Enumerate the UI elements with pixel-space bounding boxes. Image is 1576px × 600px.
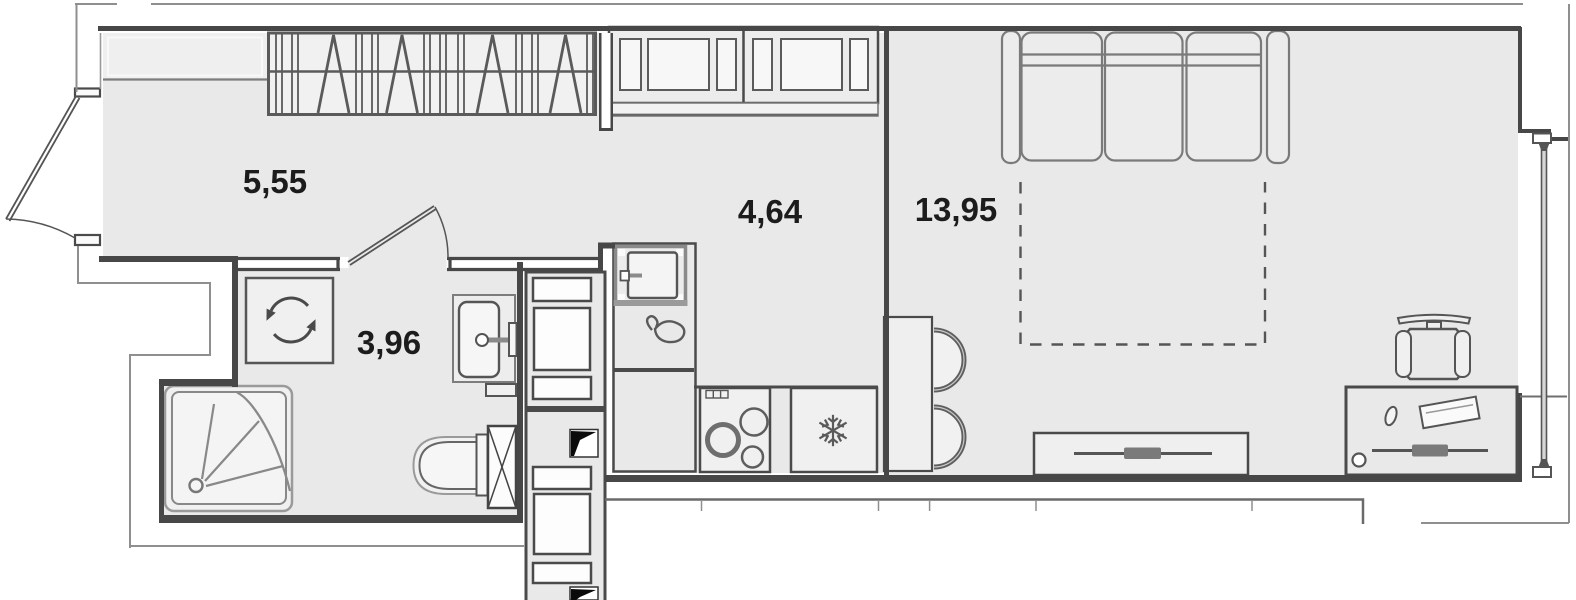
svg-text:3,96: 3,96 — [357, 324, 421, 361]
svg-text:4,64: 4,64 — [738, 193, 803, 230]
svg-text:5,55: 5,55 — [243, 163, 307, 200]
svg-text:13,95: 13,95 — [915, 191, 998, 228]
